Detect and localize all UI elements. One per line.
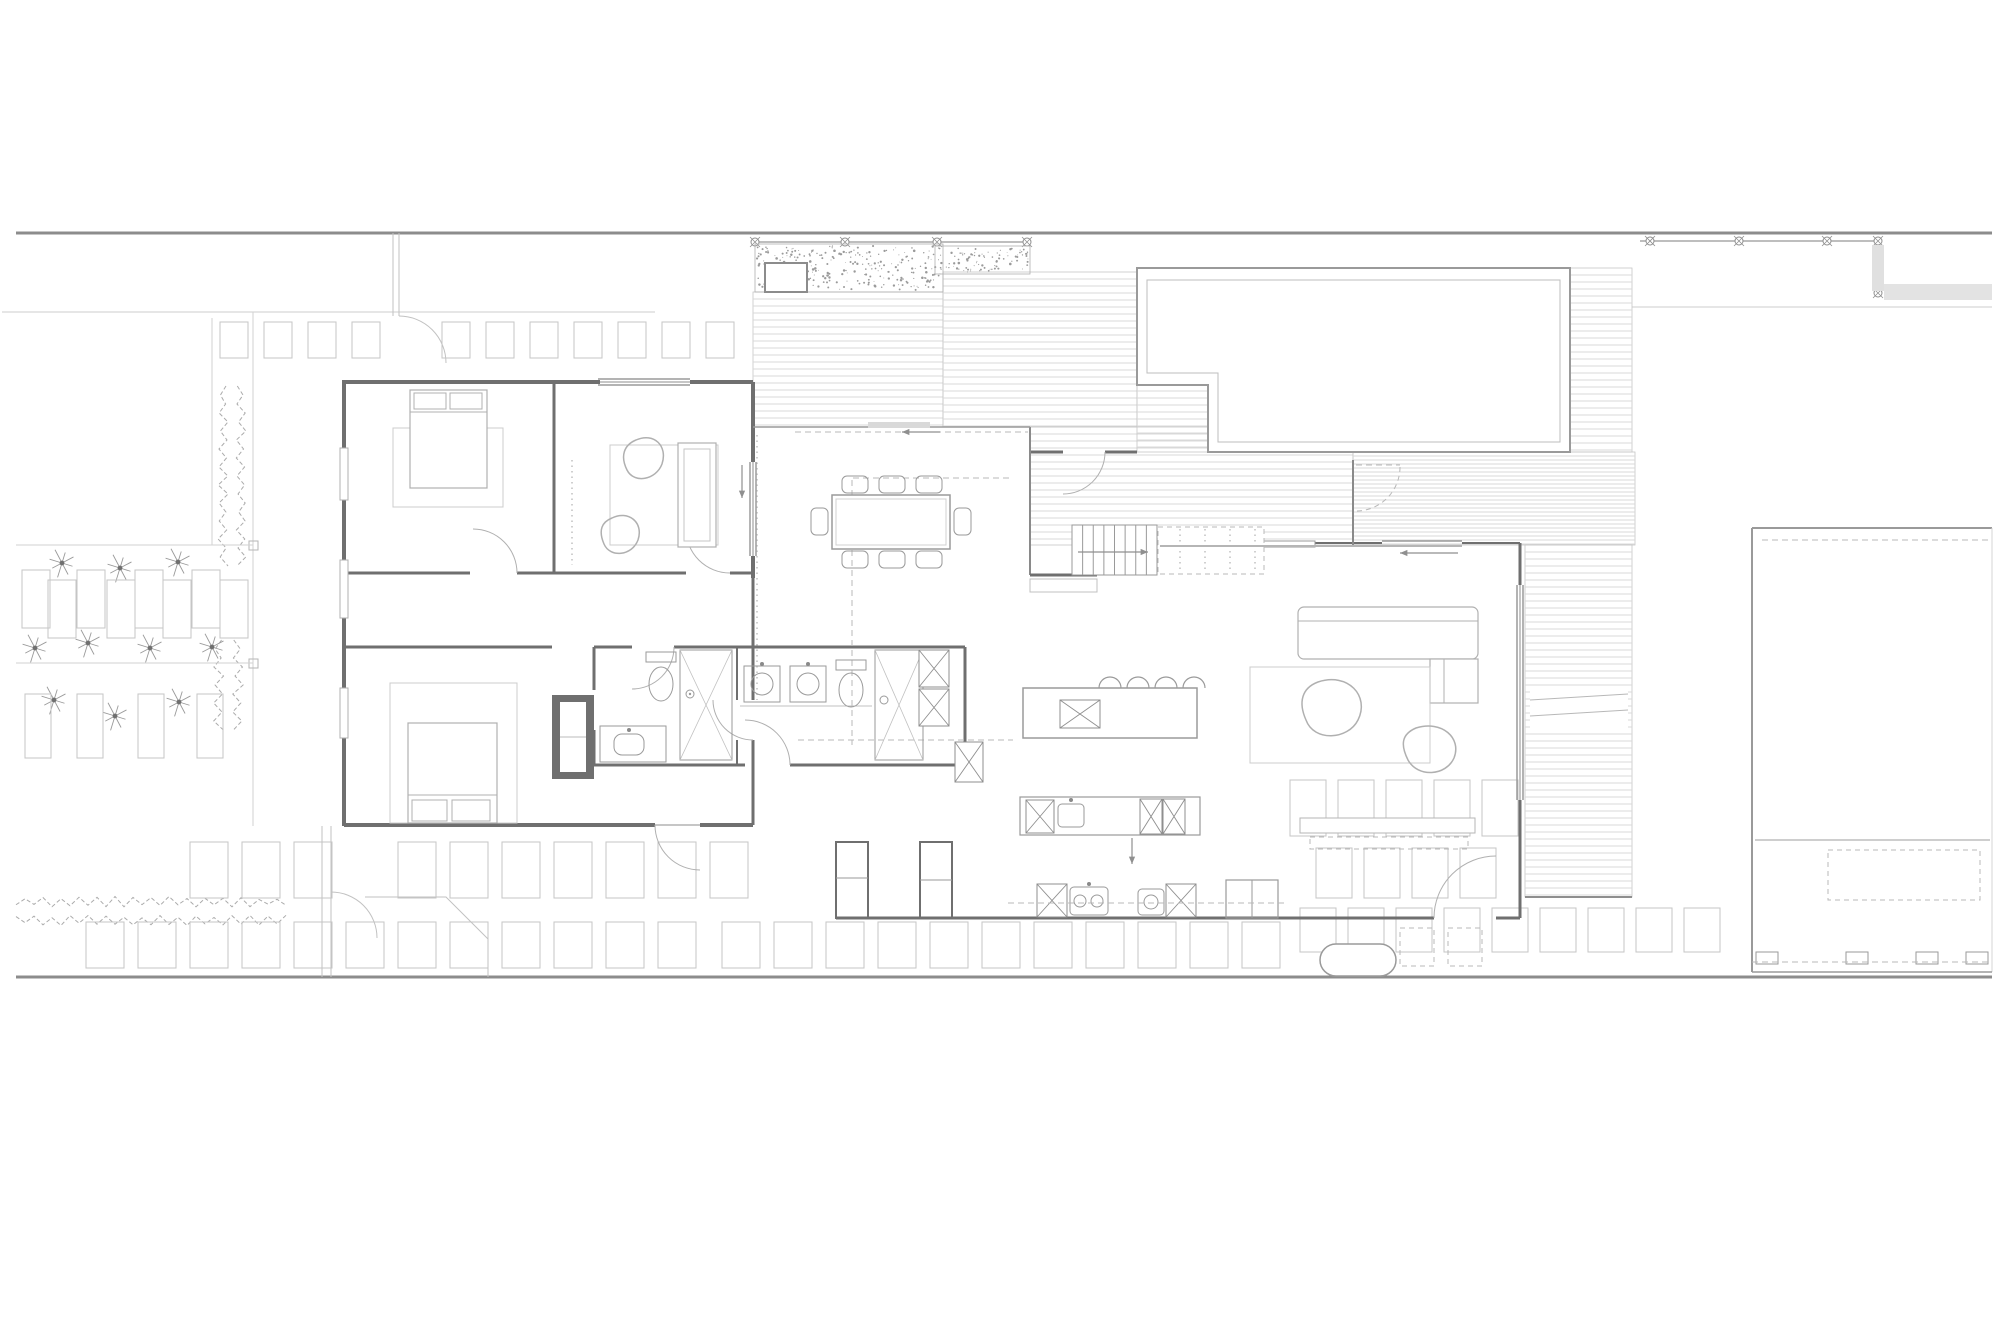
ellipse [839, 673, 863, 707]
path [1155, 677, 1177, 688]
dining-chair [842, 476, 868, 493]
water-tank [1320, 944, 1396, 976]
xbox [1140, 799, 1162, 834]
circle [797, 673, 819, 695]
deck-pool-east [1570, 268, 1632, 452]
driveway-edge [365, 897, 488, 977]
stair-landing [1158, 527, 1264, 574]
xbox [1166, 884, 1196, 917]
entry-arrow [739, 465, 745, 498]
pool-coping [1137, 268, 1570, 452]
post [1022, 237, 1032, 247]
circle [1069, 798, 1073, 802]
rect [1530, 688, 1628, 728]
rect [1884, 284, 1992, 300]
rect [879, 476, 905, 493]
circle [760, 662, 764, 666]
post [1734, 236, 1744, 246]
pantry-tower [836, 842, 868, 918]
rect [811, 508, 828, 535]
tree [167, 689, 191, 717]
dashrect [1310, 837, 1468, 849]
tv-bench [1300, 818, 1475, 833]
hedge-west-upper [218, 386, 246, 566]
rect [552, 695, 594, 702]
rect [916, 476, 942, 493]
window-west-1 [340, 448, 348, 500]
rect [1872, 245, 1884, 291]
deck-main-west [753, 292, 943, 427]
xbox [919, 689, 949, 726]
rect [552, 772, 594, 779]
bath-basin-2 [790, 666, 826, 702]
circle [689, 693, 691, 695]
rect [842, 551, 868, 568]
stool [1099, 677, 1121, 688]
laundry-appliance [1037, 884, 1067, 917]
tree [50, 550, 74, 578]
gravel-bed-2 [935, 246, 1030, 274]
paver-row-south-3 [722, 922, 1280, 968]
post [1645, 236, 1655, 246]
post [840, 237, 850, 247]
stepping-pavers-a [22, 570, 220, 628]
bed1 [410, 390, 487, 488]
stepping-pavers-b [48, 580, 248, 638]
dashrect [1400, 928, 1434, 966]
side-table [624, 438, 664, 479]
post [1822, 236, 1832, 246]
dining-table [832, 495, 950, 549]
path [1127, 677, 1149, 688]
circle [1074, 895, 1086, 907]
hedge-south [16, 896, 286, 925]
bath-wc [836, 660, 866, 670]
path [331, 892, 377, 938]
path [632, 647, 674, 689]
window-west-3 [340, 688, 348, 738]
circle [1091, 895, 1103, 907]
tree [23, 635, 47, 663]
rect [614, 734, 644, 755]
tree [166, 549, 190, 577]
sofa [1298, 607, 1478, 659]
path [1183, 677, 1205, 688]
tree [76, 630, 100, 658]
rect [1030, 579, 1097, 592]
paver-grid-east-1 [1316, 848, 1496, 898]
circle [1087, 882, 1091, 886]
arrow [902, 429, 940, 435]
rect [954, 508, 971, 535]
post [932, 237, 942, 247]
path [399, 316, 446, 363]
arrow [1129, 838, 1135, 864]
rect [916, 551, 942, 568]
ensuite-vanity [600, 726, 666, 762]
paver-row-south-1 [190, 842, 748, 898]
path [1063, 452, 1105, 494]
linen-closet [919, 650, 949, 687]
tree [138, 635, 162, 663]
rect [1138, 889, 1164, 915]
path [601, 515, 639, 553]
circle [880, 696, 888, 704]
circle [627, 728, 631, 732]
robe [552, 695, 560, 779]
bath-basin-1 [744, 666, 780, 702]
tree [42, 687, 66, 715]
floor-plan-page [0, 0, 2000, 1333]
laundry-sink [1070, 887, 1108, 915]
dashrect [1448, 928, 1482, 966]
hedge-west-lower [214, 640, 243, 730]
pavers [25, 694, 223, 758]
paver-row-south-2 [86, 922, 696, 968]
circle [806, 662, 810, 666]
path [473, 529, 517, 573]
xbox [955, 742, 983, 782]
rect [586, 695, 594, 779]
rect [868, 422, 930, 428]
planter [765, 263, 807, 292]
post [1873, 236, 1883, 246]
window-west-2 [340, 560, 348, 618]
coffee-table [1302, 680, 1361, 736]
arrow [1400, 550, 1458, 556]
path [1434, 856, 1496, 918]
rect [879, 551, 905, 568]
deck-alfresco [1353, 452, 1635, 545]
deck-main [943, 272, 1137, 427]
site-plan-drawing [0, 0, 2000, 1333]
xbox [1026, 800, 1054, 833]
kitchen-island [1023, 688, 1197, 738]
xbox [1163, 799, 1185, 834]
dashrect [1828, 850, 1980, 900]
paver-row-north [220, 322, 734, 358]
circle [1144, 895, 1158, 909]
sofa-chaise [1430, 659, 1478, 703]
xbox [1060, 700, 1100, 728]
tree [103, 703, 127, 731]
path [655, 825, 700, 870]
tree [108, 555, 132, 583]
